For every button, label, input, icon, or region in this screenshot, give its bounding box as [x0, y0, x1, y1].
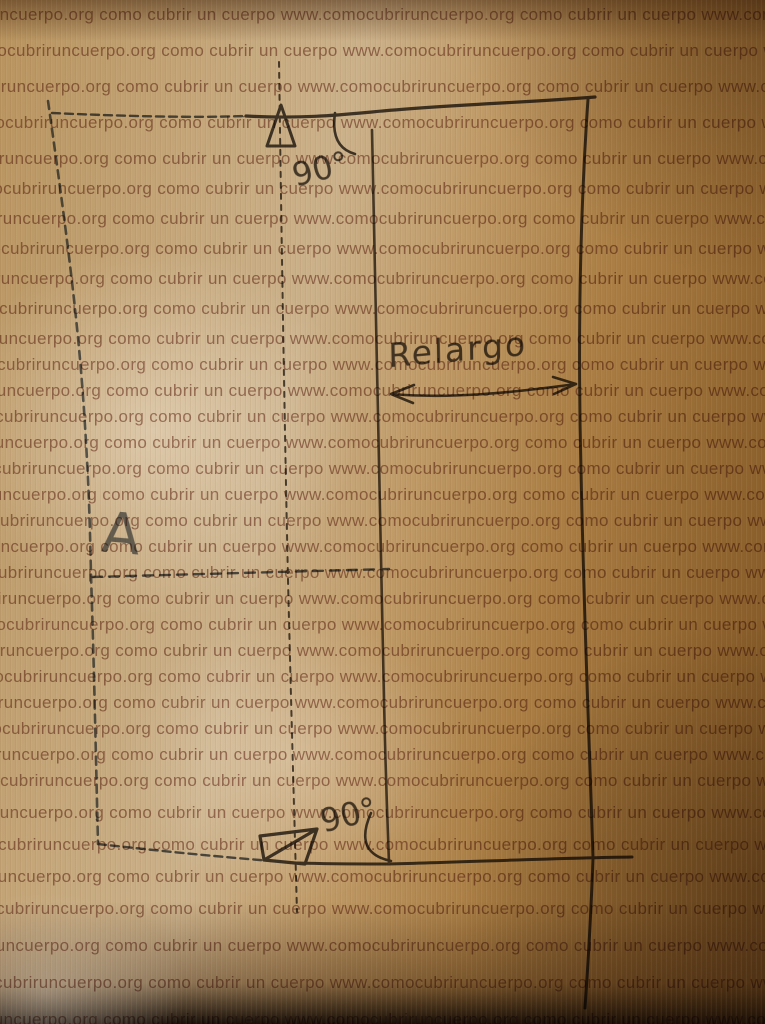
top-edge-line	[246, 97, 595, 117]
relargo-double-arrow	[391, 377, 576, 403]
center-dashed-grainline	[279, 62, 297, 912]
inner-vertical-line	[372, 130, 389, 863]
bottom-edge-line	[298, 857, 632, 864]
kraft-paper-pattern-photo: como cubrir un cuerpo www.comocubriruncu…	[0, 0, 765, 1024]
top-edge-stitch-segment	[52, 113, 246, 117]
right-edge-line	[579, 99, 593, 1008]
bottom-notch-triangle	[260, 829, 317, 864]
point-a-label: A	[99, 500, 143, 568]
hem-dashed-line-a	[92, 569, 389, 577]
left-edge-stitch-line	[48, 101, 98, 844]
